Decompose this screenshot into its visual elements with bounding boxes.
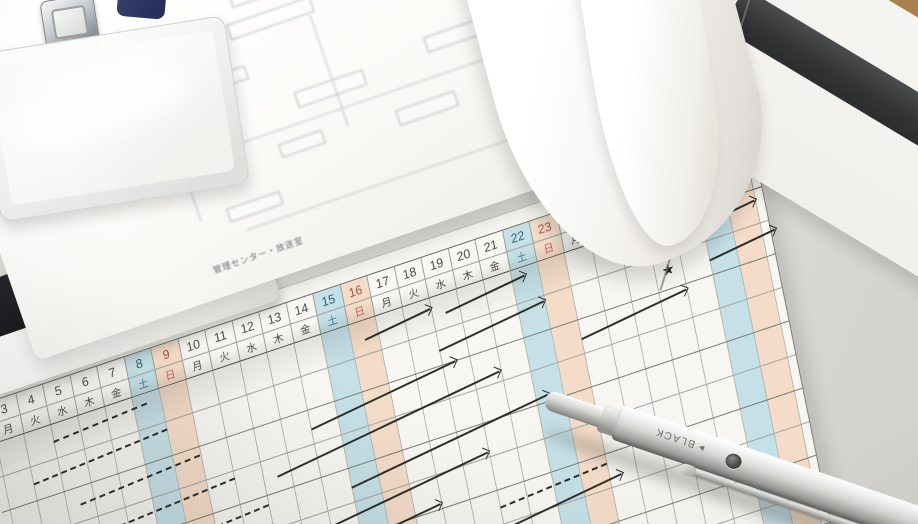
flowchart-box xyxy=(278,130,326,158)
desk-scene: 20XX年XX月XX日版 345678910111213141516171819… xyxy=(0,0,918,524)
id-badge xyxy=(0,0,251,224)
flowchart-box xyxy=(395,91,459,126)
flowchart-box xyxy=(226,191,284,222)
pen-label-marker: ▶ xyxy=(698,443,705,451)
flowchart-line xyxy=(310,15,349,127)
flowchart-box xyxy=(226,0,314,40)
badge-strap xyxy=(116,0,167,20)
flowchart-box xyxy=(423,19,481,52)
badge-clip-hole xyxy=(51,5,89,40)
